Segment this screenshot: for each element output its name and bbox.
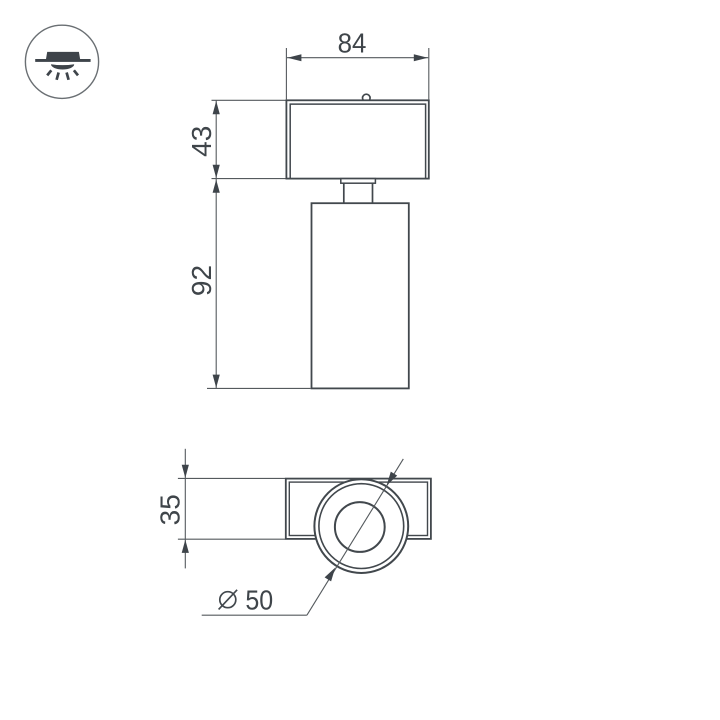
svg-text:35: 35 bbox=[155, 494, 186, 525]
svg-text:92: 92 bbox=[186, 265, 217, 296]
svg-text:84: 84 bbox=[338, 27, 367, 58]
svg-text:50: 50 bbox=[245, 584, 273, 615]
svg-text:43: 43 bbox=[186, 126, 217, 157]
